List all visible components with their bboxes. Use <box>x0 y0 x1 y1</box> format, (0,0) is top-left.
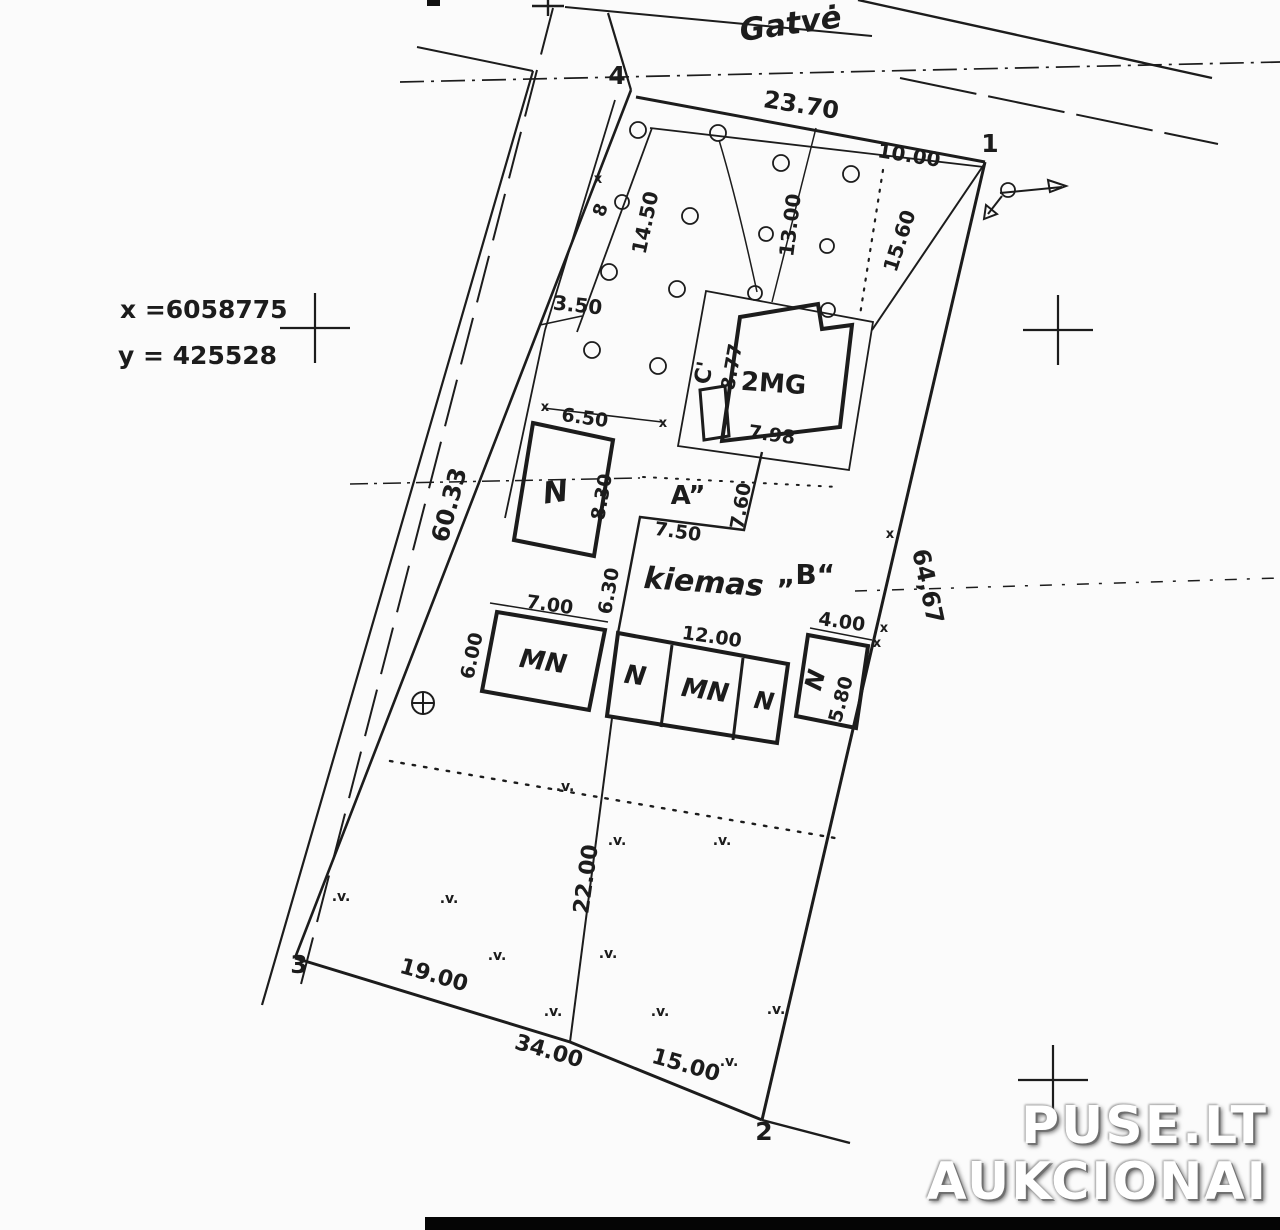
building-label: 8 <box>589 201 613 220</box>
dimension-label: 7.98 <box>747 421 796 449</box>
plan-labels: Gatvėx =6058775y = 425528412323.7010.001… <box>118 0 999 1146</box>
dimension-tick: x <box>541 400 550 415</box>
circled-cross-symbol <box>412 692 434 714</box>
dimension-tick: x <box>873 636 882 651</box>
dimension-label: 6.30 <box>594 566 624 616</box>
vegetation-mark: .v. <box>651 1004 670 1020</box>
boundary-west <box>295 90 631 958</box>
road-corner-line <box>417 47 533 71</box>
vegetation-mark: .v. <box>608 833 627 849</box>
dimension-label: 6.50 <box>560 404 609 432</box>
street-edge-line <box>900 78 1218 144</box>
strip-cap-line <box>540 316 582 325</box>
dimension-label: 13.00 <box>774 192 806 258</box>
tree-path-line <box>719 140 757 292</box>
survey-plan-scan: Gatvėx =6058775y = 425528412323.7010.001… <box>0 0 1280 1230</box>
vegetation-mark: .v. <box>556 779 575 795</box>
dimension-label: 22.00 <box>569 843 603 915</box>
watermark-site-name: PUSE.LT <box>1021 1100 1268 1152</box>
corner-point-label: 2 <box>755 1117 772 1146</box>
road-center-dashed <box>300 8 553 988</box>
boundary-tail <box>762 1120 850 1143</box>
area-label: A” <box>671 481 706 511</box>
building-label: N <box>541 474 571 512</box>
dimension-label: 19.00 <box>397 954 471 997</box>
vegetation-mark: .v. <box>720 1054 739 1070</box>
building-group-divider <box>661 645 672 727</box>
building-label: MN <box>679 673 731 709</box>
survey-symbols <box>280 0 1093 1115</box>
dimension-tick: x <box>880 621 889 636</box>
dimension-tick: x <box>594 172 603 187</box>
area-label: kiemas <box>643 561 765 604</box>
dimension-tick: x <box>886 527 895 542</box>
vegetation-mark: .v. <box>599 946 618 962</box>
dimension-label: 5.80 <box>825 674 858 725</box>
dimension-label: 10.00 <box>876 138 942 172</box>
area-label: „B“ <box>777 558 835 591</box>
coordinate-label: x =6058775 <box>120 295 288 324</box>
grid-cross-partial <box>532 0 564 16</box>
dimension-label: 7.60 <box>726 481 756 531</box>
grid-cross <box>1023 295 1093 365</box>
street-edge-line <box>858 0 1212 78</box>
field-dotted-line <box>390 761 835 838</box>
dimension-label: 3.50 <box>552 291 604 320</box>
street-name-label: Gatvė <box>737 0 843 49</box>
plan-drawing: Gatvėx =6058775y = 425528412323.7010.001… <box>0 0 1280 1230</box>
north-arrow <box>984 180 1066 219</box>
vegetation-mark: .v. <box>440 891 459 907</box>
street-lines <box>262 0 1280 1005</box>
vegetation-mark: .v. <box>332 889 351 905</box>
dimension-label: 7.50 <box>653 518 702 546</box>
vegetation-mark: .v. <box>713 833 732 849</box>
dimension-label: 64,67 <box>906 546 949 626</box>
dimension-label: 4.00 <box>817 608 866 636</box>
dimension-label: 14.50 <box>627 189 664 256</box>
dimension-label: 23.70 <box>762 85 841 125</box>
vegetation-mark: .v. <box>544 1004 563 1020</box>
building-label: N <box>752 686 776 717</box>
building-label: C' <box>690 359 719 386</box>
dotted-15-60 <box>860 170 883 315</box>
scan-bottom-bar <box>425 1217 1280 1230</box>
building-label: N <box>799 667 831 694</box>
vegetation-mark: .v. <box>767 1002 786 1018</box>
building-label: N <box>622 660 648 693</box>
coordinate-label: y = 425528 <box>118 341 277 370</box>
building-group-divider <box>733 658 743 740</box>
dimension-tick: x <box>659 416 668 431</box>
grid-cross <box>280 293 350 363</box>
road-west-line <box>262 71 533 1005</box>
dimension-label: 15.60 <box>878 207 920 275</box>
corner-point-label: 1 <box>981 129 998 158</box>
building-label: 2MG <box>740 367 807 401</box>
dimension-label: 15.00 <box>649 1044 723 1087</box>
building-label: MN <box>517 644 569 680</box>
vegetation-mark: .v. <box>488 948 507 964</box>
corner-point-label: 3 <box>290 950 307 979</box>
corner-point-label: 4 <box>608 61 625 90</box>
dimension-label: 6.00 <box>456 631 487 681</box>
dimension-label: 7.00 <box>525 591 574 619</box>
watermark-subtitle: AUKCIONAI <box>926 1156 1268 1208</box>
scan-top-edge-mark <box>427 0 440 6</box>
